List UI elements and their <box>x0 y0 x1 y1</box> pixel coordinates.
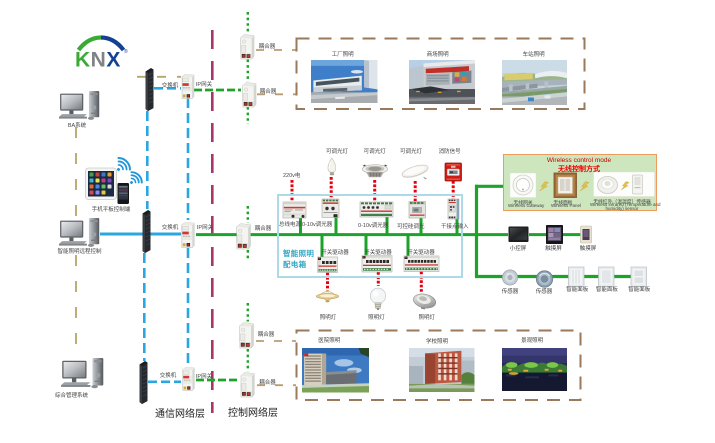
svg-text:®: ® <box>124 48 128 55</box>
svg-text:KNX: KNX <box>75 49 121 72</box>
